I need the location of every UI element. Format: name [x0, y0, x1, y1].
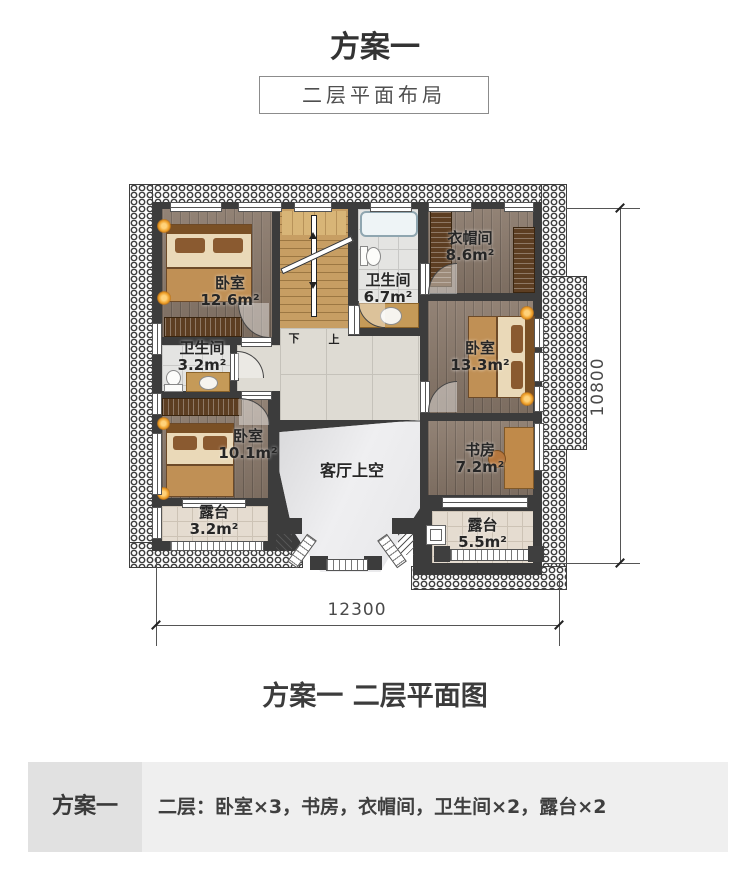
roof-band-top — [130, 185, 566, 203]
room-label-living-void: 客厅上空 — [292, 462, 412, 481]
room-area: 12.6m² — [180, 292, 280, 309]
summary-plan-label: 方案一 — [28, 762, 142, 852]
room-label-cloakroom: 衣帽间 8.6m² — [420, 230, 520, 265]
dim-extension-bottom — [548, 563, 640, 564]
page: 方案一 二层平面布局 下 上 — [0, 0, 750, 876]
window-icon — [370, 202, 412, 212]
room-area: 7.2m² — [430, 459, 530, 476]
window-icon — [534, 386, 544, 412]
room-label-bedroom-101: 卧室 10.1m² — [198, 428, 298, 463]
door-gap-terrace55 — [442, 497, 528, 508]
stair-up-label: 上 — [324, 331, 344, 347]
window-icon — [504, 202, 534, 212]
window-icon — [152, 433, 162, 495]
room-name: 卧室 — [180, 275, 280, 292]
room-label-bedroom-133: 卧室 13.3m² — [430, 340, 530, 375]
room-label-bathroom-67: 卫生间 6.7m² — [348, 272, 428, 307]
lamp-icon — [520, 306, 534, 320]
room-name: 卧室 — [430, 340, 530, 357]
room-name: 卧室 — [198, 428, 298, 445]
room-name: 衣帽间 — [420, 230, 520, 247]
sink-icon-bath32 — [199, 376, 218, 390]
room-area: 6.7m² — [348, 289, 428, 306]
room-label-terrace-32: 露台 3.2m² — [169, 504, 259, 539]
room-name: 卫生间 — [157, 340, 247, 357]
dim-line-height — [620, 208, 621, 563]
door-gap-bath67 — [348, 305, 360, 335]
toilet-tank-bath32 — [164, 384, 183, 392]
bay-window-icon — [326, 559, 368, 571]
lamp-icon — [157, 291, 171, 305]
roof-band-right-bump — [542, 277, 586, 449]
toilet-icon-bath67 — [366, 247, 381, 266]
lamp-icon — [157, 219, 171, 233]
room-label-bathroom-32: 卫生间 3.2m² — [157, 340, 247, 375]
subtitle-box: 二层平面布局 — [259, 76, 489, 114]
wardrobe-icon-bedroom126 — [164, 317, 242, 337]
stair-down-label: 下 — [284, 330, 304, 346]
bay-wall — [392, 518, 418, 534]
window-icon — [534, 352, 544, 382]
dim-extension-top — [566, 208, 640, 209]
room-label-study: 书房 7.2m² — [430, 442, 530, 477]
room-label-terrace-55: 露台 5.5m² — [432, 517, 533, 552]
dim-label-width: 12300 — [307, 600, 407, 620]
dim-extension-left — [156, 558, 157, 646]
page-title: 方案一 — [0, 22, 750, 66]
dim-label-height: 10800 — [588, 337, 608, 437]
room-name: 卫生间 — [348, 272, 428, 289]
room-area: 13.3m² — [430, 357, 530, 374]
stair-down-arrow-icon — [309, 282, 317, 289]
bathtub-icon — [360, 211, 418, 237]
terrace32-railing — [170, 541, 264, 551]
room-area: 10.1m² — [198, 445, 298, 462]
window-icon — [534, 318, 544, 348]
room-area: 3.2m² — [169, 521, 259, 538]
vanity-bath32 — [186, 372, 230, 392]
roof-band-left — [130, 185, 152, 567]
room-area: 8.6m² — [420, 247, 520, 264]
room-name: 客厅上空 — [292, 462, 412, 481]
bay-wall — [276, 518, 302, 534]
window-icon — [152, 393, 162, 415]
wardrobe-icon-bedroom101 — [162, 398, 242, 416]
lamp-icon — [157, 417, 170, 430]
stair-handrail — [311, 215, 317, 317]
wall-under-bath67 — [348, 327, 428, 336]
dim-line-width — [156, 625, 559, 626]
room-area: 5.5m² — [432, 534, 533, 551]
window-icon — [152, 507, 162, 539]
dim-extension-right — [559, 578, 560, 646]
plan-caption: 方案一 二层平面图 — [0, 674, 750, 713]
window-icon — [170, 202, 222, 212]
window-icon — [238, 202, 282, 212]
room-name: 露台 — [169, 504, 259, 521]
room-area: 3.2m² — [157, 357, 247, 374]
stair-up-arrow-icon — [309, 232, 317, 239]
window-icon — [294, 202, 332, 212]
window-icon — [428, 202, 472, 212]
lamp-icon — [520, 392, 534, 406]
room-name: 书房 — [430, 442, 530, 459]
summary-description: 二层：卧室×3，书房，衣帽间，卫生间×2，露台×2 — [158, 762, 718, 852]
window-icon — [534, 423, 544, 471]
room-label-bedroom-126: 卧室 12.6m² — [180, 275, 280, 310]
room-name: 露台 — [432, 517, 533, 534]
